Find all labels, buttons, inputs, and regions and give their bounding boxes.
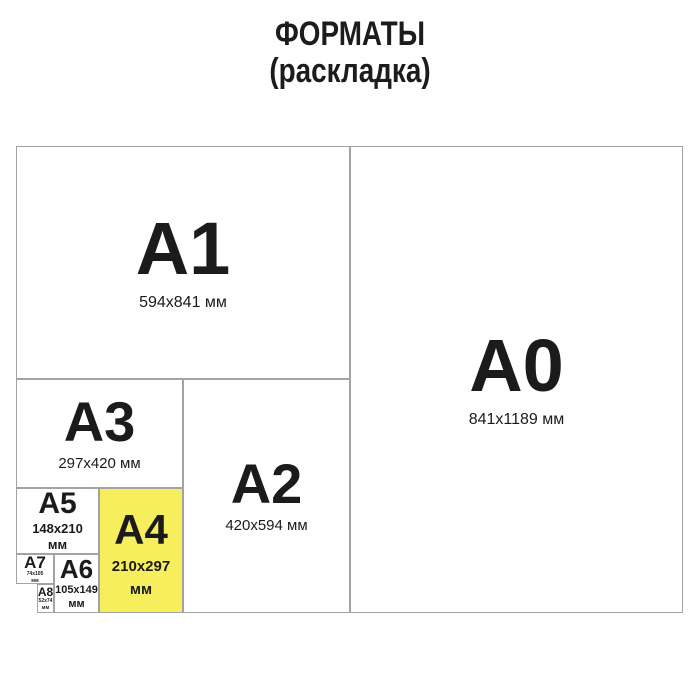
format-box-a8: A8 52x74 мм xyxy=(37,584,54,613)
format-box-a4-highlighted: A4 210x297 мм xyxy=(99,488,183,613)
format-a1-size: 594x841 мм xyxy=(139,293,227,313)
format-a8-unit: мм xyxy=(42,605,49,612)
format-box-a5: A5 148x210 мм xyxy=(16,488,99,554)
format-a6-size: 105x149 xyxy=(55,584,98,598)
format-a2-label: A2 xyxy=(231,456,303,512)
format-a5-unit: мм xyxy=(48,537,67,553)
format-a0-size: 841x1189 мм xyxy=(469,410,565,430)
format-a0-label: A0 xyxy=(469,329,564,403)
format-a3-label: A3 xyxy=(64,394,136,450)
page-title: ФОРМАТЫ (раскладка) xyxy=(63,16,637,90)
format-box-a3: A3 297x420 мм xyxy=(16,379,183,488)
format-a3-size: 297x420 мм xyxy=(58,455,140,474)
format-a2-size: 420x594 мм xyxy=(225,517,307,536)
page-title-line2: (раскладка) xyxy=(63,53,637,90)
format-a5-size: 148x210 xyxy=(32,521,83,537)
format-a4-unit: мм xyxy=(130,581,152,600)
format-box-a2: A2 420x594 мм xyxy=(183,379,350,613)
format-box-a1: A1 594x841 мм xyxy=(16,146,350,379)
format-a6-label: A6 xyxy=(60,556,93,582)
page: ФОРМАТЫ (раскладка) A1 594x841 мм A0 841… xyxy=(0,0,700,700)
format-a1-label: A1 xyxy=(136,212,231,286)
format-box-a0: A0 841x1189 мм xyxy=(350,146,683,613)
format-a4-size: 210x297 xyxy=(112,558,170,577)
format-box-a7: A7 74x105 мм xyxy=(16,554,54,584)
format-a7-label: A7 xyxy=(24,554,46,571)
format-a6-unit: мм xyxy=(68,598,84,612)
format-a8-label: A8 xyxy=(38,586,53,598)
format-box-a6: A6 105x149 мм xyxy=(54,554,99,613)
format-a5-label: A5 xyxy=(38,489,76,519)
format-a4-label: A4 xyxy=(114,509,168,551)
page-title-line1: ФОРМАТЫ xyxy=(63,16,637,53)
